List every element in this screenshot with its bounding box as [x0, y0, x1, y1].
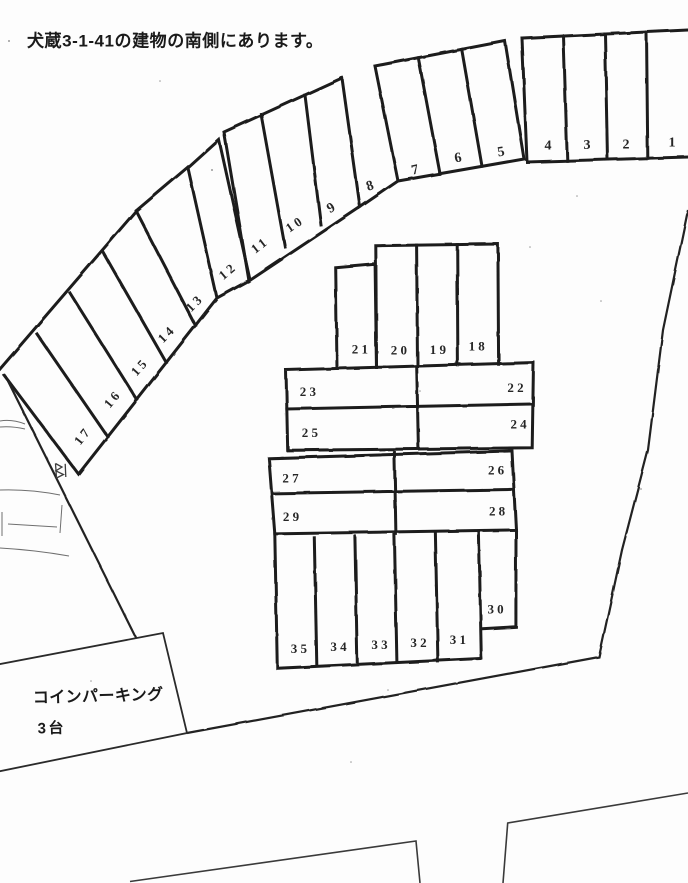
svg-text:27: 27 — [282, 471, 301, 486]
svg-text:4: 4 — [545, 139, 552, 154]
svg-text:8: 8 — [365, 178, 376, 194]
svg-text:22: 22 — [507, 380, 526, 395]
svg-text:5: 5 — [496, 144, 505, 160]
svg-text:10: 10 — [283, 212, 307, 235]
svg-text:25: 25 — [302, 425, 321, 440]
svg-text:コインパーキング: コインパーキング — [33, 685, 164, 707]
svg-text:3: 3 — [584, 138, 591, 153]
svg-text:16: 16 — [101, 386, 125, 411]
svg-text:28: 28 — [489, 503, 508, 518]
svg-text:6: 6 — [453, 150, 462, 166]
svg-text:19: 19 — [430, 342, 449, 357]
svg-text:29: 29 — [283, 509, 302, 524]
svg-text:1: 1 — [669, 136, 676, 151]
svg-text:34: 34 — [330, 639, 349, 654]
svg-text:13: 13 — [183, 290, 207, 314]
svg-text:32: 32 — [410, 635, 429, 650]
svg-text:犬蔵3-1-41の建物の南側にあります。: 犬蔵3-1-41の建物の南側にあります。 — [27, 31, 323, 51]
svg-text:17: 17 — [71, 423, 95, 448]
svg-text:3台: 3台 — [37, 719, 66, 738]
svg-text:23: 23 — [300, 384, 319, 399]
svg-text:24: 24 — [510, 416, 529, 431]
svg-text:18: 18 — [469, 338, 488, 353]
svg-text:21: 21 — [352, 342, 371, 357]
svg-text:30: 30 — [487, 601, 506, 616]
svg-text:15: 15 — [128, 354, 152, 378]
svg-text:31: 31 — [450, 632, 469, 647]
svg-text:11: 11 — [248, 233, 272, 256]
svg-text:20: 20 — [391, 343, 410, 358]
svg-text:14: 14 — [155, 321, 179, 345]
svg-text:26: 26 — [488, 463, 507, 478]
svg-text:7: 7 — [410, 162, 420, 178]
svg-text:33: 33 — [371, 637, 390, 652]
svg-text:9: 9 — [324, 200, 338, 216]
svg-text:35: 35 — [291, 641, 310, 656]
svg-text:12: 12 — [216, 259, 241, 283]
svg-text:2: 2 — [623, 137, 630, 152]
